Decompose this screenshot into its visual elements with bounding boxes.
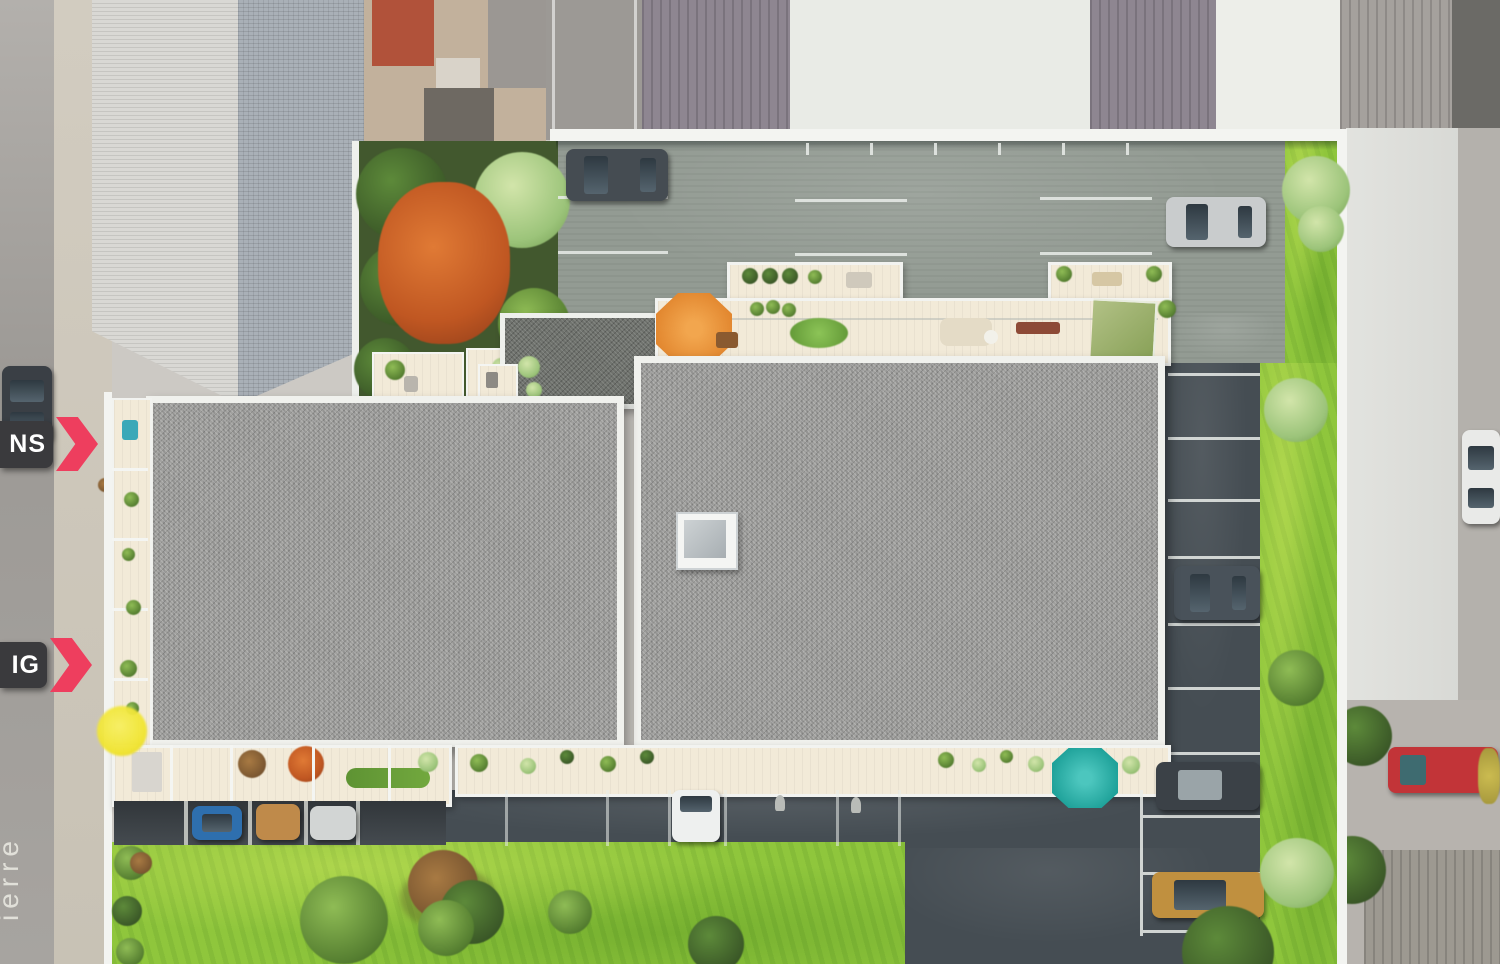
parking-line (558, 251, 668, 254)
car-east-column (1174, 566, 1260, 620)
west-balcony-strip (112, 398, 152, 751)
annotation-tag-ns-text: NS (9, 430, 46, 459)
bush (122, 548, 135, 561)
tree (418, 900, 474, 956)
terrace-divider (388, 745, 391, 801)
bush (1028, 756, 1044, 772)
bush (600, 756, 616, 772)
parking-line (1040, 197, 1152, 200)
neighbor-purple-roof-b (1090, 0, 1216, 133)
car-north-lot-west (566, 149, 668, 201)
parking-line (1168, 623, 1260, 626)
neighbor-pitched-roof (92, 0, 368, 404)
parking-line (806, 143, 809, 155)
parking-line (870, 143, 873, 155)
bush (470, 754, 488, 772)
bush (518, 356, 540, 378)
west-building-roof (146, 396, 624, 747)
car-carport-blue (192, 806, 242, 840)
car-window (680, 796, 712, 812)
parking-line (1062, 143, 1065, 155)
neighbor-gray-roof (488, 0, 546, 88)
car-window (584, 156, 608, 194)
parking-line (1168, 752, 1260, 755)
terrace-door (132, 752, 162, 792)
bush (1000, 750, 1013, 763)
car-window (1468, 488, 1494, 508)
terrace-divider (312, 745, 315, 801)
bush (120, 660, 137, 677)
car-window (1232, 576, 1246, 610)
skylight-glass (684, 520, 726, 558)
bush (1056, 266, 1072, 282)
parking-line (1168, 437, 1260, 440)
carport-post (356, 801, 360, 845)
car-courtyard-white (672, 790, 720, 842)
car-window (10, 380, 44, 402)
car-southeast-suv (1156, 762, 1260, 810)
car-window (202, 814, 232, 832)
parking-meter (851, 797, 861, 813)
north-parking-driveway (1165, 313, 1285, 365)
car-carport-tan (256, 804, 300, 840)
car-window (1186, 204, 1208, 240)
bush (782, 268, 798, 284)
balcony-divider (112, 468, 148, 471)
plot-wall-west (104, 392, 112, 964)
orange-parasol (656, 293, 732, 365)
balcony-teal-furniture (122, 420, 138, 440)
balcony-divider (112, 538, 148, 541)
grass-south-garden (112, 842, 905, 964)
car-north-lot-east (1166, 197, 1266, 247)
parking-line (1143, 815, 1260, 818)
bush (1122, 756, 1140, 774)
balcony-divider (112, 678, 148, 681)
parking-meter (775, 795, 785, 811)
parking-line (1168, 687, 1260, 690)
parking-line (1168, 499, 1260, 502)
neighbor-shed (436, 58, 480, 92)
bush (1478, 748, 1500, 804)
north-road (546, 0, 642, 140)
bush (742, 268, 758, 284)
plot-wall-north-shadow (556, 141, 1337, 150)
carport-post (304, 801, 308, 845)
autumn-tree (378, 182, 510, 344)
bush (1158, 300, 1176, 318)
parking-line (1140, 790, 1143, 936)
bay-line (724, 790, 727, 846)
terrace-table (716, 332, 738, 348)
terrace-divider (230, 745, 233, 801)
bush (1298, 206, 1344, 252)
bush (766, 300, 780, 314)
bush (762, 268, 778, 284)
teal-parasol (1052, 748, 1118, 808)
neighbor-white-roof-a (790, 0, 1090, 133)
tree (300, 876, 388, 964)
bay-line (606, 790, 609, 846)
bush (972, 758, 986, 772)
bay-line (505, 790, 508, 846)
parking-line (1126, 143, 1129, 155)
annotation-tag-ns[interactable]: NS (0, 421, 53, 468)
carport-post (248, 801, 252, 845)
site-plan-canvas: NS IG ierre (0, 0, 1500, 964)
parking-line (795, 199, 907, 202)
parking-line (795, 253, 907, 256)
parking-line (1168, 556, 1260, 559)
carport-post (184, 801, 188, 845)
street-name-text: ierre (0, 835, 24, 921)
parking-line (1168, 373, 1260, 376)
car-window (1468, 446, 1494, 470)
bush (548, 890, 592, 934)
car-window (640, 158, 656, 192)
north-road-curb (552, 0, 555, 140)
tree (1260, 838, 1334, 908)
neighbor-purple-roof-a (642, 0, 790, 133)
terrace-furniture (404, 376, 418, 392)
bush (520, 758, 536, 774)
yellow-dot-marker[interactable] (97, 706, 147, 756)
east-road (1458, 128, 1500, 704)
plot-wall-north (550, 129, 1345, 141)
tree (1264, 378, 1328, 442)
car-window (1400, 755, 1426, 785)
terrace-shrub-bed (790, 318, 848, 348)
roof-skylight (676, 512, 738, 570)
car-window (1190, 574, 1210, 612)
bush (112, 896, 142, 926)
bush (938, 752, 954, 768)
bay-line (668, 790, 671, 846)
bush (385, 360, 405, 380)
terrace-chair (984, 330, 998, 344)
roof-slope-east (238, 0, 368, 404)
parking-line (998, 143, 1001, 155)
bush (126, 600, 141, 615)
terrace-furniture (1092, 272, 1122, 286)
bush (560, 750, 574, 764)
terrace-rail (662, 318, 1158, 320)
car-carport-white (310, 806, 356, 840)
annotation-tag-ig-text: IG (12, 651, 40, 680)
terrace-divider (170, 745, 173, 801)
east-pavement (1346, 128, 1460, 704)
roof-slope-west (92, 0, 238, 404)
bush (808, 270, 822, 284)
terrace-planter-red (1016, 322, 1060, 334)
terrace-lounge-set (940, 318, 992, 346)
bush (782, 303, 796, 317)
bay-line (898, 790, 901, 846)
bush (238, 750, 266, 778)
street-name-label: ierre (0, 803, 25, 953)
bush (1146, 266, 1162, 282)
bush (750, 302, 764, 316)
car-window (1178, 770, 1222, 800)
bush (640, 750, 654, 764)
parked-car-east-street (1462, 430, 1500, 524)
green-parasol (1090, 298, 1157, 361)
plot-wall-east (1337, 129, 1347, 964)
neighbor-white-roof-b (1216, 0, 1340, 133)
terrace-furniture (846, 272, 872, 288)
bush (116, 938, 144, 964)
north-road-curb (634, 0, 637, 140)
parking-line (1040, 252, 1152, 255)
bay-line (836, 790, 839, 846)
bush (124, 492, 139, 507)
bush (130, 852, 152, 874)
neighbor-yard (424, 88, 494, 142)
bush (288, 746, 324, 782)
terrace-furniture (486, 372, 498, 388)
parking-line (934, 143, 937, 155)
bush (418, 752, 438, 772)
tree (1268, 650, 1324, 706)
annotation-tag-ig[interactable]: IG (0, 642, 47, 688)
bush (688, 916, 744, 964)
neighbor-red-roof (372, 0, 434, 66)
car-window (1238, 206, 1252, 238)
car-window (1174, 880, 1226, 910)
